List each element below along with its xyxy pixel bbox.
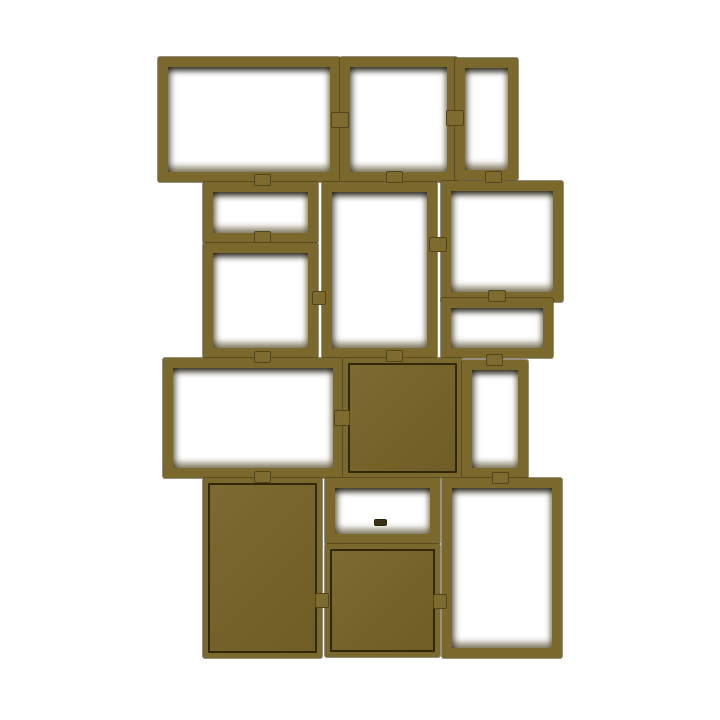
module-connector-clip-r1r2-left — [254, 174, 271, 186]
shelf-module-top-wide-left — [158, 57, 340, 182]
shelf-module-row2-right-short — [441, 298, 553, 358]
module-connector-clip-top-left-mid — [331, 112, 349, 128]
shelf-module-bottom-middle-shallow — [325, 478, 440, 544]
door-panel-bottom-left-door — [208, 483, 317, 653]
shelf-module-row2-middle-tall — [322, 182, 437, 358]
module-connector-clip-left-column — [254, 231, 271, 243]
product-photo: Product photo of an asymmetric stacked m… — [0, 0, 720, 720]
module-connector-clip-row4-mid-right — [433, 594, 447, 609]
shelf-module-row3-middle-door — [343, 358, 462, 478]
shelf-module-bottom-left-door — [203, 478, 322, 658]
module-connector-clip-r1r2-middle — [386, 171, 403, 183]
module-connector-clip-r2r3-right — [486, 354, 503, 366]
shelf-module-row2-left-tall — [203, 243, 318, 358]
shelf-module-row3-right-narrow — [462, 360, 528, 478]
shelf-module-top-right-narrow — [455, 58, 518, 180]
module-connector-clip-row2-mid-left — [312, 291, 326, 305]
module-connector-clip-row3-mid — [334, 410, 350, 426]
door-panel-row3-middle-door — [348, 363, 457, 473]
module-connector-clip-row2-mid-right — [429, 237, 447, 252]
module-connector-clip-r3r4-right — [492, 472, 509, 484]
shelf-module-row2-right — [441, 181, 563, 302]
shelf-module-row3-wide-left — [163, 358, 343, 478]
module-connector-clip-row4-mid-left — [315, 593, 329, 608]
module-connector-clip-r1r2-right — [485, 171, 502, 183]
shelf-module-top-middle — [340, 57, 457, 182]
module-connector-clip-r3r4-left — [254, 471, 271, 483]
module-connector-clip-top-right-mid — [446, 110, 464, 126]
module-connector-clip-r2r3-middle — [386, 350, 403, 362]
shelf-module-bottom-middle-door — [325, 544, 440, 657]
shelf-module-bottom-right-tall — [442, 478, 562, 658]
shelving-unit — [0, 0, 720, 720]
module-connector-clip-shelf-middle — [374, 519, 387, 526]
module-connector-clip-r2r3-left — [254, 351, 271, 363]
module-connector-clip-right-column — [488, 290, 506, 302]
door-panel-bottom-middle-door — [330, 549, 435, 652]
